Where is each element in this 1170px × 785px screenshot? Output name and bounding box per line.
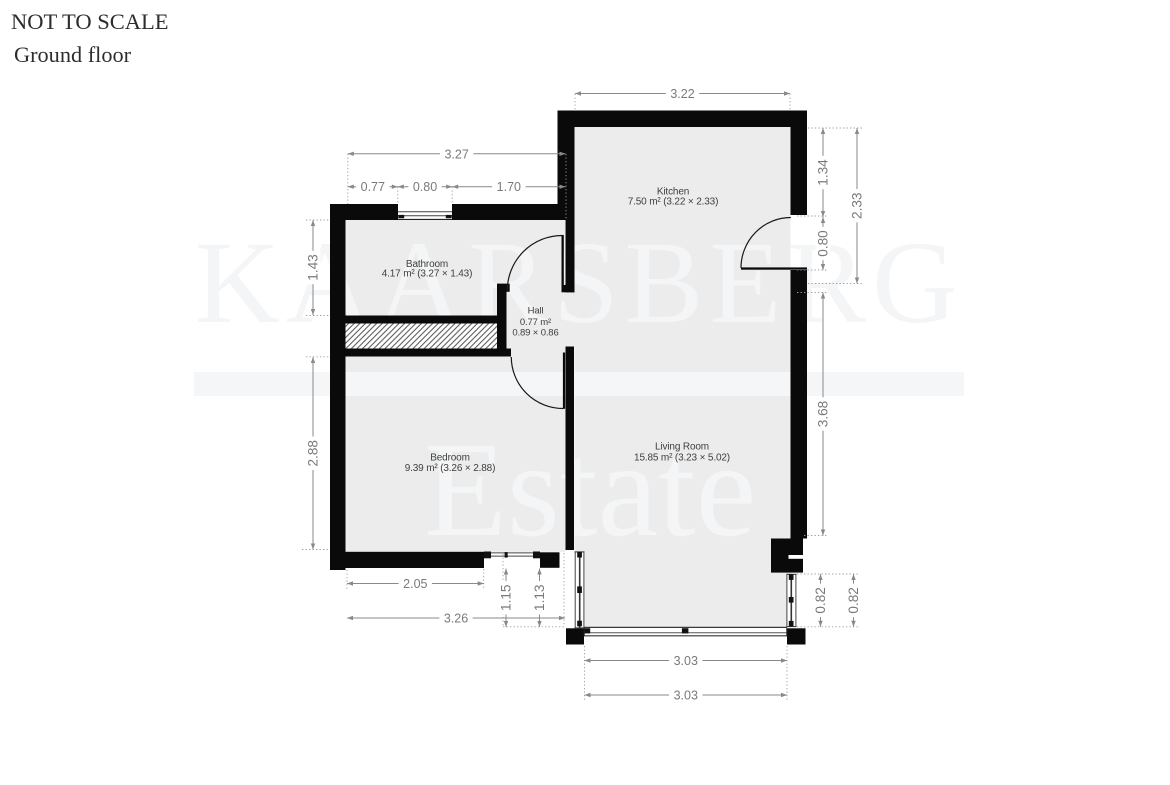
svg-text:15.85 m² (3.23 × 5.02): 15.85 m² (3.23 × 5.02) [634,452,730,463]
svg-text:0.80: 0.80 [413,180,437,194]
svg-text:0.77 m²: 0.77 m² [520,317,551,328]
svg-text:0.82: 0.82 [846,587,861,613]
svg-text:Living Room: Living Room [655,442,709,453]
svg-text:Estate: Estate [424,415,756,565]
svg-text:0.80: 0.80 [816,230,831,257]
svg-text:1.70: 1.70 [497,180,521,194]
svg-text:3.27: 3.27 [444,147,468,161]
svg-text:3.03: 3.03 [674,654,698,668]
svg-text:2.05: 2.05 [403,577,427,591]
svg-text:9.39 m² (3.26 × 2.88): 9.39 m² (3.26 × 2.88) [405,463,496,474]
svg-text:Hall: Hall [528,305,544,316]
svg-text:0.82: 0.82 [813,587,828,613]
svg-text:3.22: 3.22 [670,87,694,101]
svg-text:Ground floor: Ground floor [14,42,132,67]
svg-text:3.68: 3.68 [816,401,831,427]
svg-text:2.33: 2.33 [850,193,865,219]
svg-text:2.88: 2.88 [306,440,321,466]
svg-text:1.13: 1.13 [532,585,547,611]
svg-text:3.03: 3.03 [674,689,698,703]
svg-text:1.43: 1.43 [306,254,321,280]
svg-text:1.15: 1.15 [499,585,514,611]
svg-text:NOT TO SCALE: NOT TO SCALE [11,9,169,34]
svg-text:1.34: 1.34 [816,159,831,186]
svg-text:7.50 m² (3.22 × 2.33): 7.50 m² (3.22 × 2.33) [628,197,719,208]
svg-text:3.26: 3.26 [444,612,468,626]
svg-text:0.89 × 0.86: 0.89 × 0.86 [512,328,558,339]
svg-text:0.77: 0.77 [361,180,385,194]
svg-text:4.17 m² (3.27 × 1.43): 4.17 m² (3.27 × 1.43) [382,269,473,280]
